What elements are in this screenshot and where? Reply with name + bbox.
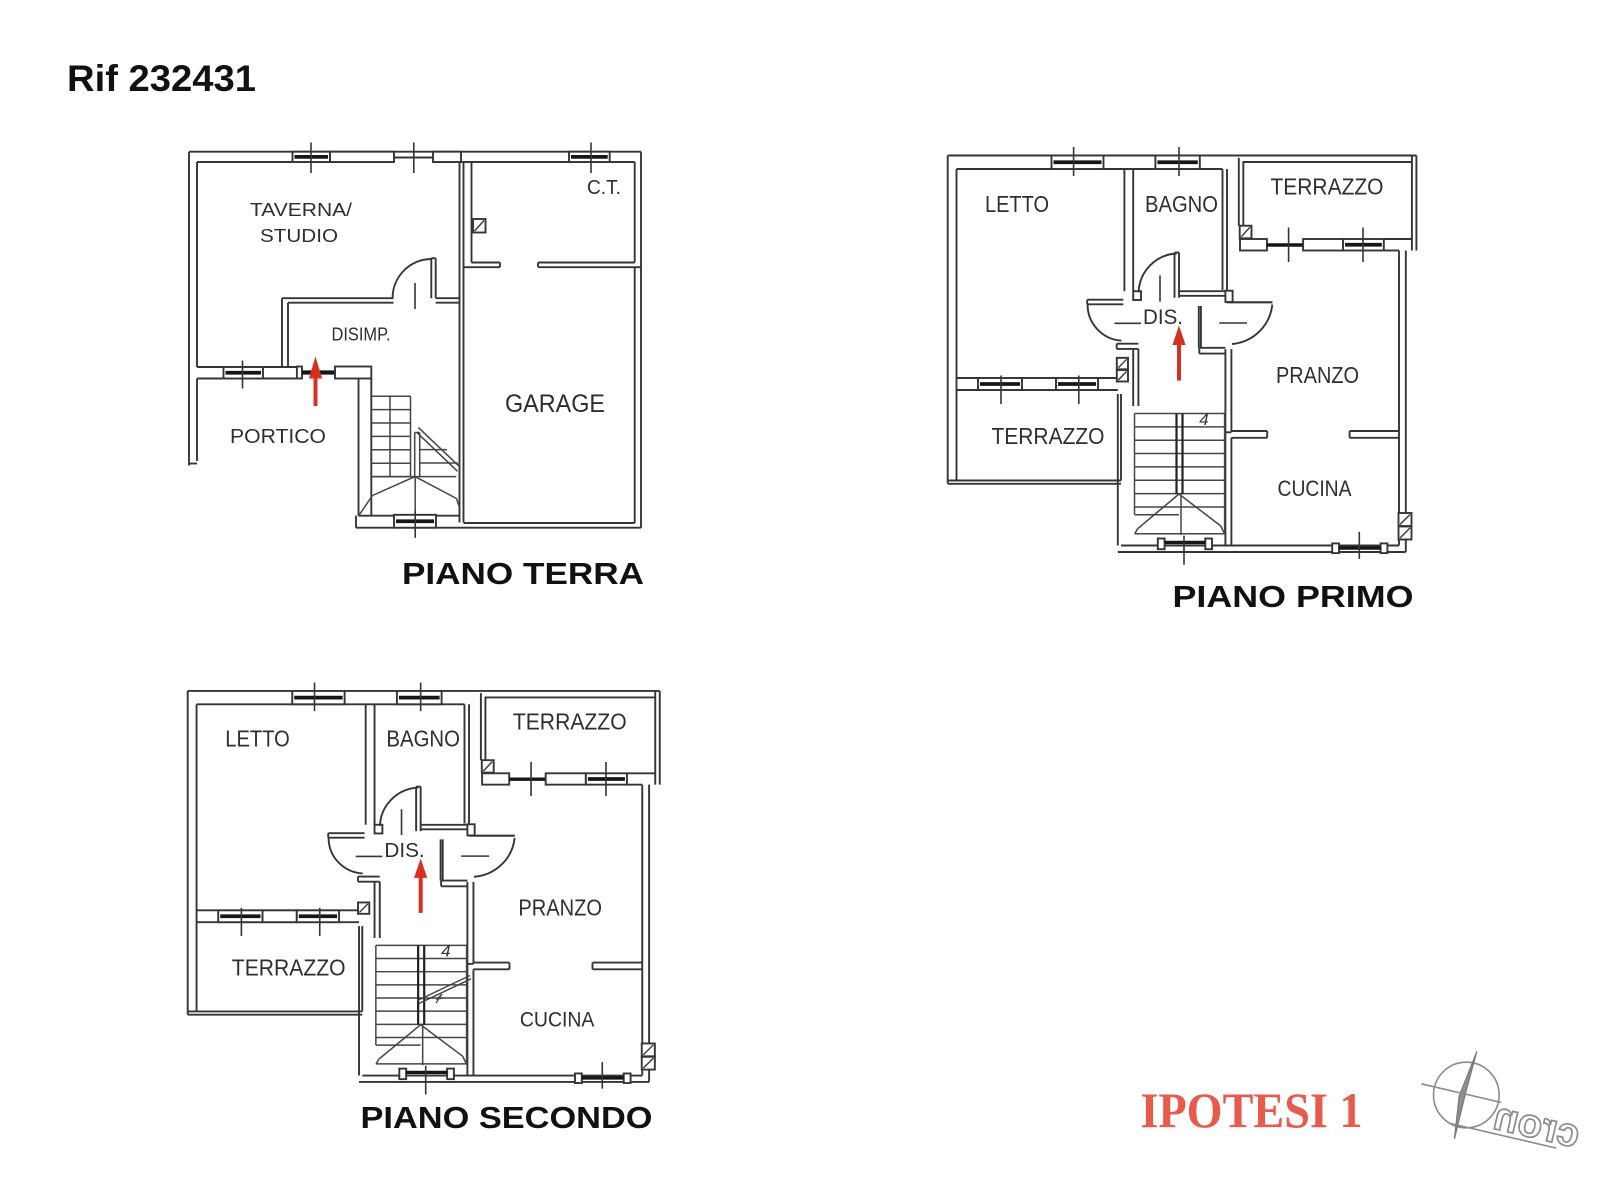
svg-text:PRANZO: PRANZO — [1276, 362, 1359, 388]
svg-text:4: 4 — [1199, 410, 1208, 429]
svg-text:IPOTESI 1: IPOTESI 1 — [1141, 1082, 1363, 1138]
svg-text:PIANO SECONDO: PIANO SECONDO — [361, 1100, 653, 1135]
svg-text:C.T.: C.T. — [587, 177, 621, 199]
svg-text:PIANO PRIMO: PIANO PRIMO — [1173, 579, 1414, 614]
svg-text:TAVERNA/: TAVERNA/ — [250, 199, 353, 220]
svg-text:GARAGE: GARAGE — [505, 390, 605, 418]
svg-text:PIANO TERRA: PIANO TERRA — [402, 556, 644, 591]
svg-text:TERRAZZO: TERRAZZO — [1271, 174, 1384, 200]
svg-text:TERRAZZO: TERRAZZO — [992, 423, 1105, 449]
svg-text:CUCINA: CUCINA — [1278, 476, 1352, 501]
svg-text:Rif 232431: Rif 232431 — [67, 58, 256, 99]
svg-text:BAGNO: BAGNO — [1145, 191, 1218, 217]
svg-text:STUDIO: STUDIO — [260, 225, 338, 246]
svg-text:LETTO: LETTO — [985, 191, 1049, 217]
svg-text:DISIMP.: DISIMP. — [332, 325, 391, 345]
svg-text:PORTICO: PORTICO — [230, 425, 326, 448]
svg-text:DIS.: DIS. — [1143, 306, 1183, 329]
